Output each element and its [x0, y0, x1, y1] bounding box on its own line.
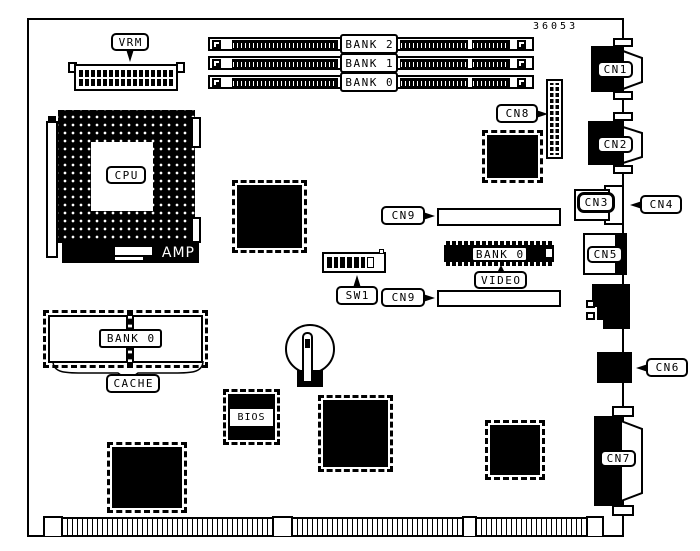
edge-step [462, 516, 477, 536]
simm-latch [212, 78, 221, 87]
motherboard-diagram: 36053 VRM BANK 2 BANK 1 BANK 0 CPU AMP [0, 0, 700, 551]
callout-arrow [423, 212, 435, 220]
simm-pins [472, 40, 510, 49]
bank2-label: BANK 2 [340, 34, 398, 54]
dip-switch-pole [340, 257, 345, 268]
din-connector-tab [586, 300, 595, 308]
simm-pins [400, 59, 468, 68]
simm-latch [517, 78, 526, 87]
dip-switch-pole [354, 257, 359, 268]
callout-arrow [353, 275, 361, 288]
sw1-label: SW1 [336, 286, 378, 305]
zif-lever-cap [48, 116, 56, 123]
cn5-label: CN5 [587, 246, 623, 263]
edge-fingers [62, 517, 272, 535]
ic-chip-2 [487, 135, 538, 178]
edge-step [43, 516, 63, 536]
cpu-label: CPU [106, 166, 146, 184]
cn9-lower-label: CN9 [381, 288, 425, 307]
cn6-connector [597, 352, 632, 383]
vrm-connector [74, 64, 178, 91]
cn1-label: CN1 [597, 61, 633, 78]
simm-pins [472, 59, 510, 68]
cn7-label: CN7 [600, 450, 636, 467]
edge-fingers [476, 517, 586, 535]
callout-arrow [630, 201, 642, 209]
amp-bar-slot [115, 247, 152, 255]
simm-pins [400, 40, 468, 49]
cn8-connector [546, 79, 563, 159]
cn2-mount-tab-bottom [613, 165, 633, 174]
cn6-label: CN6 [646, 358, 688, 377]
cache-label: CACHE [106, 374, 160, 393]
din-connector-top [592, 284, 630, 307]
simm-latch [212, 59, 221, 68]
simm-latch [517, 40, 526, 49]
ic-chip-4 [323, 400, 388, 467]
callout-arrow [423, 294, 435, 302]
video-module-notch [546, 249, 552, 257]
ic-chip-3 [112, 447, 182, 508]
din-connector-mid [597, 307, 630, 320]
amp-bar-slot-2 [115, 257, 143, 260]
callout-arrow [536, 110, 548, 118]
simm-pins [400, 78, 468, 87]
edge-step [272, 516, 293, 536]
dip-switch-pole [367, 257, 374, 268]
simm-pins [472, 78, 510, 87]
socket-tab-bottom [191, 217, 201, 243]
callout-arrow [636, 364, 648, 372]
cn2-label: CN2 [597, 136, 633, 153]
video-label: VIDEO [474, 271, 527, 289]
cache-bank-label: BANK 0 [99, 329, 162, 348]
simm-latch [517, 59, 526, 68]
callout-arrow [126, 49, 134, 62]
cn4-label: CN4 [640, 195, 682, 214]
simm-pins [232, 40, 338, 49]
simm-latch [212, 40, 221, 49]
video-bank-label: BANK 0 [471, 246, 528, 262]
callout-arrow [497, 265, 505, 273]
dip-switch-pole [327, 257, 332, 268]
edge-fingers [292, 517, 462, 535]
cn2-mount-tab-top [613, 112, 633, 121]
simm-pins [232, 59, 338, 68]
simm-pins [232, 78, 338, 87]
cn7-mount-tab-bottom [612, 505, 634, 516]
dip-switch-pole [334, 257, 339, 268]
dip-switch-dot [379, 249, 384, 254]
cn9-upper-connector [437, 208, 561, 226]
bios-label: BIOS [230, 409, 273, 426]
edge-step [586, 516, 604, 536]
ic-chip-1 [237, 185, 302, 248]
dip-switch-pole [361, 257, 366, 268]
battery-pill-mark [305, 339, 310, 348]
zif-lever [46, 121, 58, 258]
dip-switch [322, 252, 386, 273]
part-number: 36053 [533, 21, 578, 32]
amp-text: AMP [162, 245, 195, 261]
bank1-label: BANK 1 [340, 53, 398, 73]
cn3-label: CN3 [577, 192, 615, 213]
socket-tab-top [191, 117, 201, 148]
vrm-label: VRM [111, 33, 149, 51]
cn1-mount-tab-bottom [613, 91, 633, 100]
cn9-upper-label: CN9 [381, 206, 425, 225]
bank0-simm-label: BANK 0 [340, 72, 398, 92]
ic-chip-5 [490, 425, 540, 475]
din-connector-foot [603, 320, 630, 329]
dip-switch-pole [347, 257, 352, 268]
cn9-lower-connector [437, 290, 561, 307]
cn8-label: CN8 [496, 104, 538, 123]
din-connector-tab [586, 312, 595, 320]
